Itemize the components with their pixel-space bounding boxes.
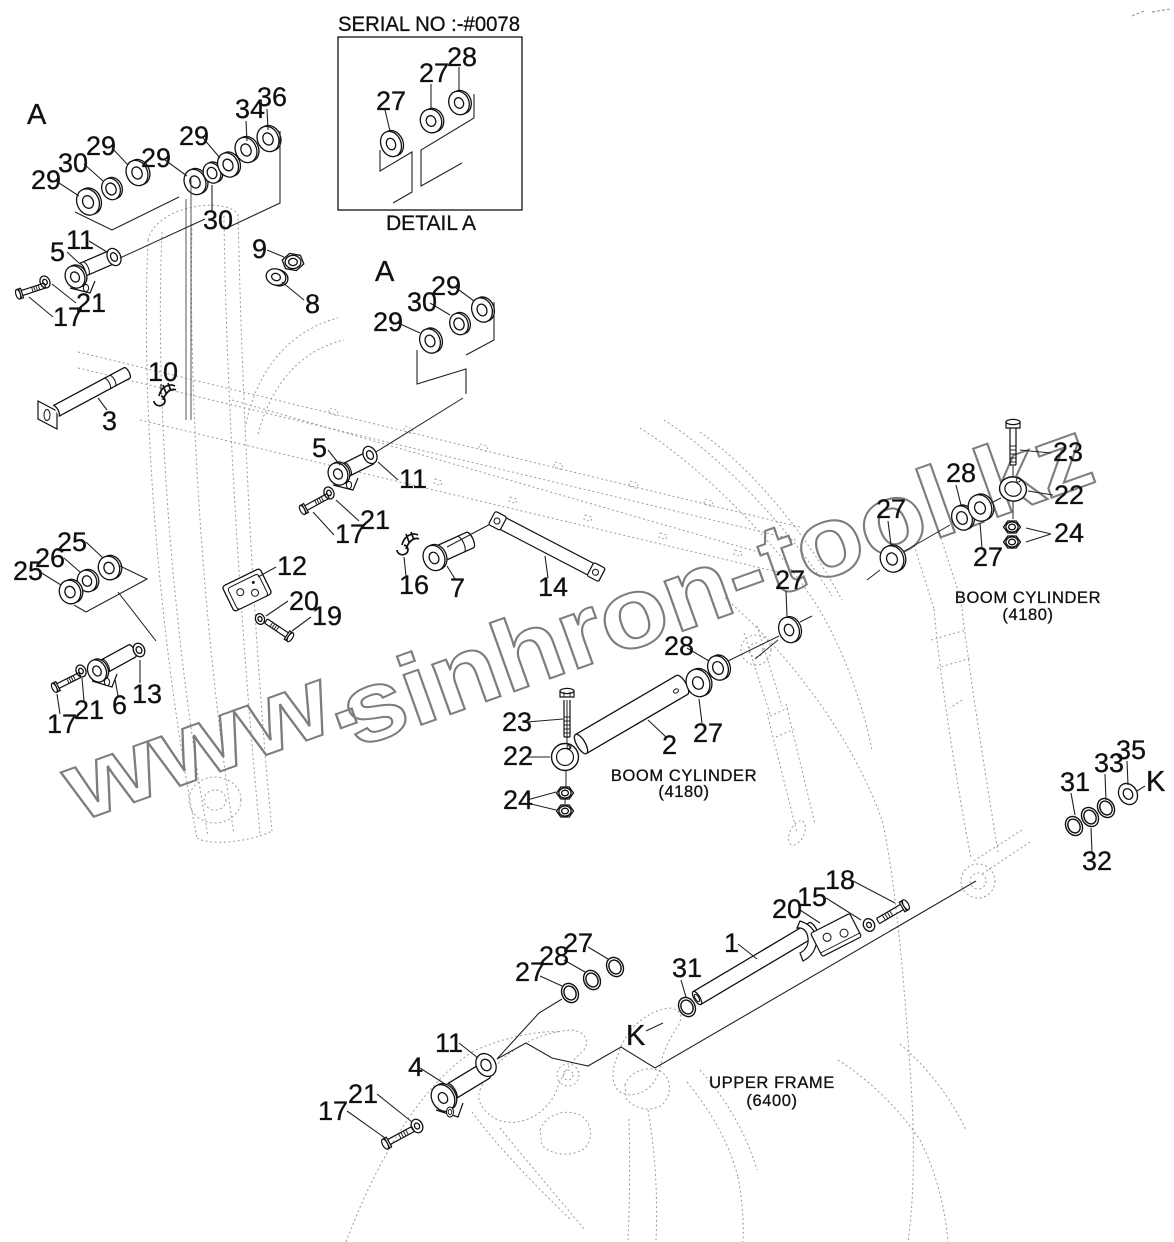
svg-text:14: 14 <box>538 572 568 602</box>
svg-text:(6400): (6400) <box>746 1092 797 1110</box>
svg-text:A: A <box>27 99 47 131</box>
svg-text:16: 16 <box>399 570 429 600</box>
svg-text:27: 27 <box>775 565 805 595</box>
svg-text:DETAIL A: DETAIL A <box>386 212 476 235</box>
svg-text:12: 12 <box>277 551 307 581</box>
svg-text:BOOM CYLINDER: BOOM CYLINDER <box>955 589 1101 607</box>
svg-text:29: 29 <box>31 165 61 195</box>
svg-text:4: 4 <box>408 1052 423 1082</box>
svg-text:27: 27 <box>515 957 545 987</box>
svg-text:27: 27 <box>693 718 723 748</box>
svg-text:SERIAL NO :-#0078: SERIAL NO :-#0078 <box>338 13 520 36</box>
svg-text:K: K <box>626 1020 646 1052</box>
svg-text:11: 11 <box>66 225 94 255</box>
svg-text:30: 30 <box>203 205 233 235</box>
svg-text:30: 30 <box>407 287 437 317</box>
svg-text:27: 27 <box>376 86 406 116</box>
svg-text:8: 8 <box>305 289 320 319</box>
svg-text:17: 17 <box>318 1096 348 1126</box>
svg-text:10: 10 <box>148 357 178 387</box>
svg-text:13: 13 <box>132 679 162 709</box>
svg-text:(4180): (4180) <box>658 783 709 801</box>
svg-text:35: 35 <box>1116 735 1146 765</box>
svg-text:A: A <box>375 256 395 288</box>
svg-text:27: 27 <box>876 494 906 524</box>
svg-text:31: 31 <box>1060 767 1090 797</box>
svg-text:22: 22 <box>503 741 533 771</box>
svg-text:28: 28 <box>946 458 976 488</box>
svg-text:11: 11 <box>399 464 427 494</box>
svg-text:27: 27 <box>973 542 1003 572</box>
svg-text:1: 1 <box>724 928 739 958</box>
svg-text:29: 29 <box>373 307 403 337</box>
svg-text:29: 29 <box>179 121 209 151</box>
svg-text:24: 24 <box>503 785 533 815</box>
svg-text:15: 15 <box>797 882 827 912</box>
svg-text:31: 31 <box>672 953 702 983</box>
svg-text:5: 5 <box>312 433 327 463</box>
svg-text:21: 21 <box>74 695 104 725</box>
svg-text:5: 5 <box>50 237 65 267</box>
svg-text:28: 28 <box>664 631 694 661</box>
svg-text:(4180): (4180) <box>1002 606 1053 624</box>
svg-text:17: 17 <box>47 709 77 739</box>
svg-text:2: 2 <box>662 730 677 760</box>
svg-text:11: 11 <box>435 1028 463 1058</box>
svg-text:32: 32 <box>1082 846 1112 876</box>
svg-text:24: 24 <box>1054 518 1084 548</box>
svg-text:21: 21 <box>348 1079 378 1109</box>
svg-text:25: 25 <box>13 556 43 586</box>
svg-text:3: 3 <box>102 406 117 436</box>
svg-text:28: 28 <box>447 42 477 72</box>
svg-text:29: 29 <box>141 143 171 173</box>
svg-text:36: 36 <box>257 82 287 112</box>
svg-text:23: 23 <box>502 707 532 737</box>
svg-text:23: 23 <box>1053 437 1083 467</box>
svg-text:UPPER FRAME: UPPER FRAME <box>709 1074 835 1092</box>
svg-text:30: 30 <box>58 148 88 178</box>
svg-text:29: 29 <box>86 131 116 161</box>
svg-text:9: 9 <box>252 234 267 264</box>
svg-text:18: 18 <box>825 865 855 895</box>
svg-text:6: 6 <box>112 690 127 720</box>
svg-text:7: 7 <box>450 573 465 603</box>
svg-text:27: 27 <box>419 58 449 88</box>
svg-text:17: 17 <box>53 302 83 332</box>
svg-text:19: 19 <box>312 601 342 631</box>
svg-text:K: K <box>1146 766 1166 798</box>
svg-text:17: 17 <box>335 519 365 549</box>
svg-text:22: 22 <box>1054 480 1084 510</box>
